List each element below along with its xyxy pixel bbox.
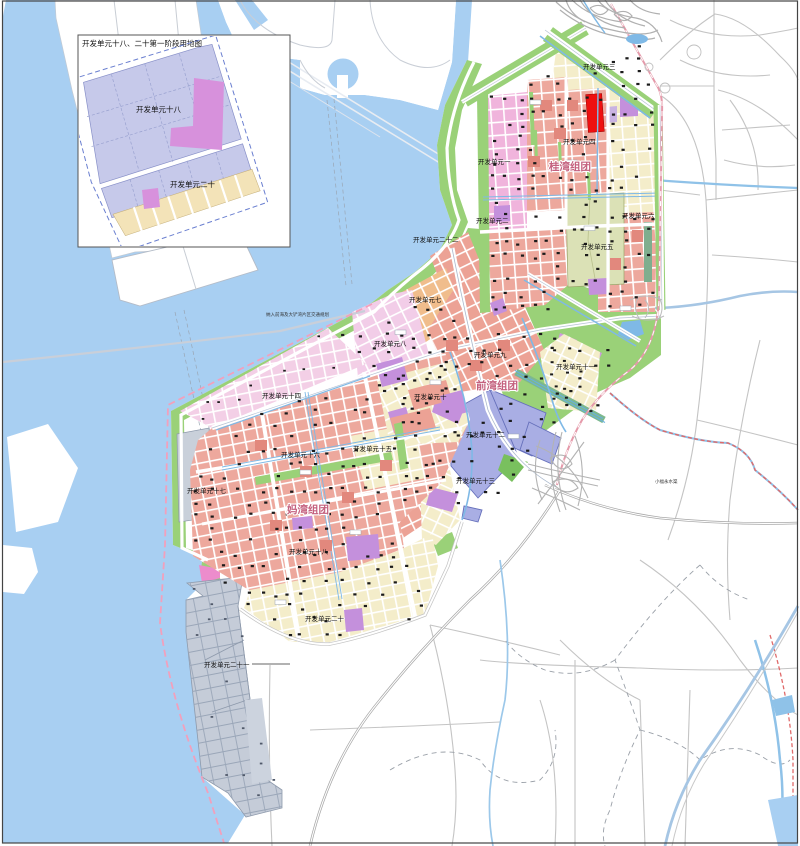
svg-text:开发单元十六: 开发单元十六: [281, 450, 321, 459]
svg-text:开发单元二: 开发单元二: [476, 216, 509, 225]
svg-text:开发单元十八、二十第一阶段用地图: 开发单元十八、二十第一阶段用地图: [82, 38, 202, 48]
svg-text:小福永水渠: 小福永水渠: [655, 478, 678, 485]
svg-text:开发单元十五: 开发单元十五: [353, 444, 393, 453]
svg-text:开发单元一: 开发单元一: [478, 157, 511, 166]
svg-text:开发单元十二: 开发单元十二: [466, 430, 506, 439]
svg-text:开发单元二十一: 开发单元二十一: [204, 660, 250, 669]
svg-text:纳入前海及大铲湾片区交通规划: 纳入前海及大铲湾片区交通规划: [266, 311, 329, 318]
svg-text:开发单元七: 开发单元七: [409, 295, 442, 304]
svg-text:开发单元十三: 开发单元十三: [456, 476, 496, 485]
svg-text:开发单元三: 开发单元三: [583, 62, 616, 71]
svg-text:开发单元八: 开发单元八: [374, 339, 407, 348]
svg-text:开发单元二十: 开发单元二十: [170, 179, 215, 189]
svg-text:开发单元二十: 开发单元二十: [305, 614, 345, 623]
svg-text:桂湾组团: 桂湾组团: [548, 160, 591, 173]
svg-text:妈湾组团: 妈湾组团: [287, 503, 329, 516]
svg-text:开发单元九: 开发单元九: [474, 350, 507, 359]
svg-text:开发单元十八: 开发单元十八: [136, 104, 181, 114]
svg-text:开发单元十七: 开发单元十七: [187, 486, 227, 495]
svg-text:开发单元五: 开发单元五: [581, 242, 614, 251]
svg-text:开发单元二十二: 开发单元二十二: [413, 235, 459, 244]
svg-text:前湾组团: 前湾组团: [476, 379, 518, 392]
svg-text:开发单元十八: 开发单元十八: [289, 547, 329, 556]
svg-text:开发单元六: 开发单元六: [622, 211, 655, 220]
svg-text:开发单元四: 开发单元四: [563, 137, 596, 146]
svg-text:开发单元十四: 开发单元十四: [262, 391, 301, 400]
svg-text:开发单元十一: 开发单元十一: [556, 362, 596, 371]
svg-text:开发单元十: 开发单元十: [414, 392, 447, 401]
